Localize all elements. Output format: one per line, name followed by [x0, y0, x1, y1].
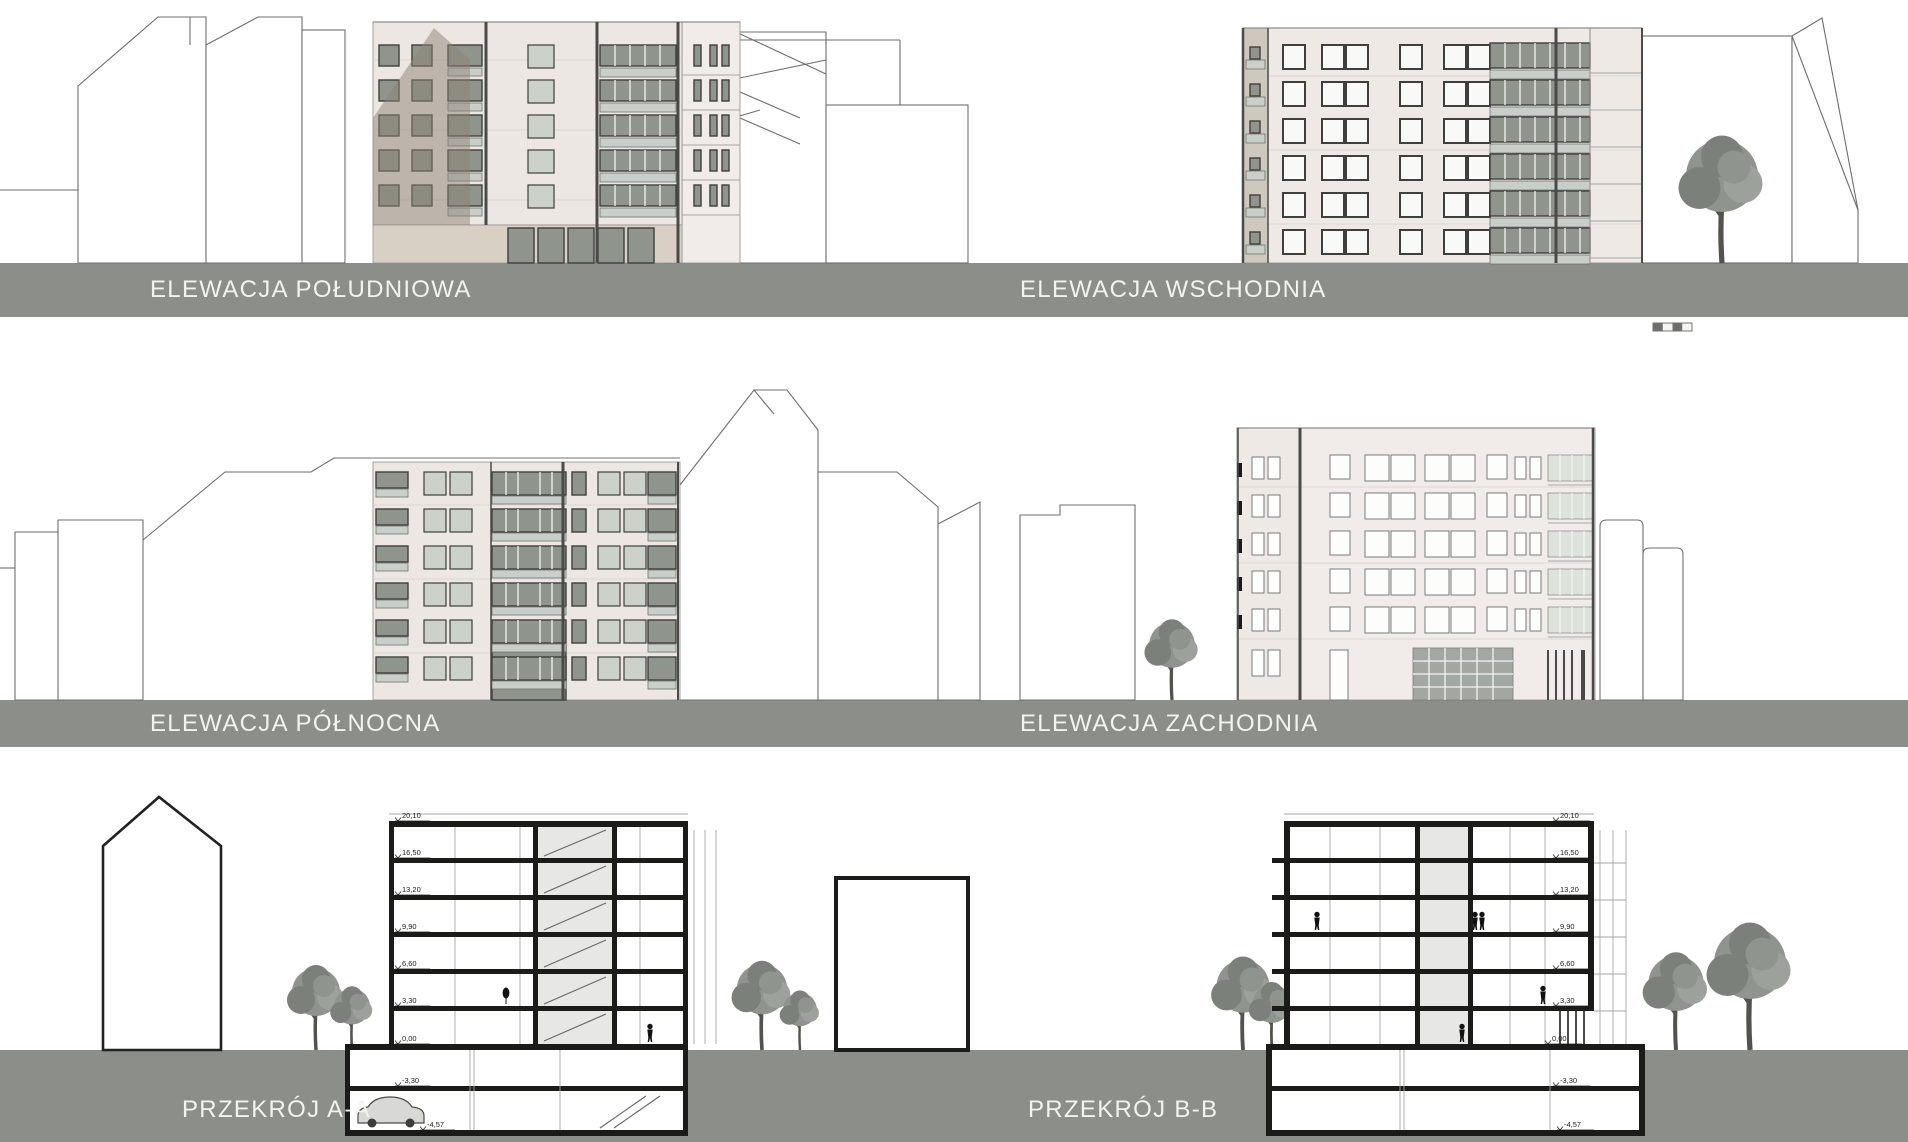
level-label: -4,57: [1564, 1120, 1581, 1129]
west-main-building: [1237, 428, 1595, 700]
level-label: 6,60: [1560, 959, 1575, 968]
level-label: -4,57: [427, 1120, 444, 1129]
level-label: 20,10: [1560, 811, 1579, 820]
scale-bar-icon: [1653, 323, 1692, 331]
elevations-and-sections-drawing: 20,10 16,50 13,20 9,90 6,60 3,30 0,00 -3…: [0, 0, 1908, 1142]
east-neighbor-outlines: [1642, 18, 1858, 263]
north-elevation-drawing: [0, 390, 980, 700]
south-entrance-doors: [508, 228, 654, 263]
level-label: -3,30: [1560, 1076, 1577, 1085]
section-b-building: 20,10 16,50 13,20 9,90 6,60 3,30 0,00 -3…: [1266, 811, 1645, 1136]
tree-icon: [1643, 952, 1707, 1050]
east-elevation-drawing: [1243, 18, 1858, 264]
level-label: 6,60: [402, 959, 417, 968]
panel-label-south: ELEWACJA POŁUDNIOWA: [150, 276, 472, 304]
panel-label-section-a: PRZEKRÓJ A-A: [182, 1096, 371, 1124]
level-label: -3,30: [402, 1076, 419, 1085]
west-elevation-drawing: [1020, 428, 1683, 700]
tree-icon: [732, 961, 791, 1050]
level-label: 3,30: [402, 996, 417, 1005]
tree-icon: [1144, 619, 1197, 700]
section-a-building: 20,10 16,50 13,20 9,90 6,60 3,30 0,00 -3…: [345, 811, 716, 1136]
level-label: 16,50: [402, 848, 421, 857]
level-label: 13,20: [402, 885, 421, 894]
neighbor-block-outline: [836, 878, 968, 1050]
drawing-sheet: 20,10 16,50 13,20 9,90 6,60 3,30 0,00 -3…: [0, 0, 1908, 1142]
north-main-building: [373, 458, 680, 700]
level-label: 16,50: [1560, 848, 1579, 857]
panel-label-section-b: PRZEKRÓJ B-B: [1028, 1096, 1218, 1124]
south-elevation-drawing: [0, 17, 968, 263]
level-label: 13,20: [1560, 885, 1579, 894]
level-label: 0,00: [1552, 1034, 1567, 1043]
panel-label-east: ELEWACJA WSCHODNIA: [1020, 276, 1327, 304]
tree-icon: [1707, 923, 1791, 1051]
south-main-building: [373, 22, 740, 263]
level-label: 9,90: [1560, 922, 1575, 931]
panel-label-west: ELEWACJA ZACHODNIA: [1020, 710, 1319, 738]
level-label: 20,10: [402, 811, 421, 820]
level-label: 9,90: [402, 922, 417, 931]
panel-label-north: ELEWACJA PÓŁNOCNA: [150, 710, 441, 738]
neighbor-house-outline: [103, 797, 221, 1050]
east-main-building: [1243, 28, 1642, 264]
level-label: 0,00: [402, 1034, 417, 1043]
level-label: 3,30: [1560, 996, 1575, 1005]
